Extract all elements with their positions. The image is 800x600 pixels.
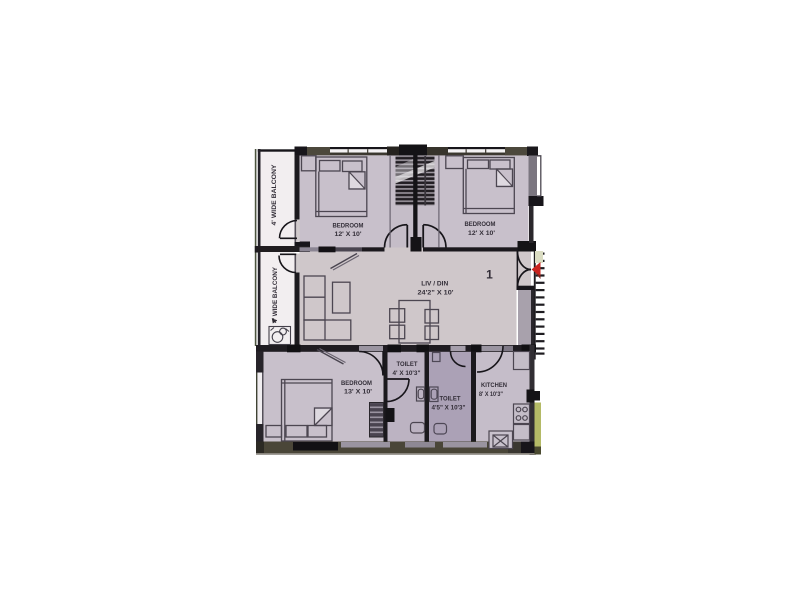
svg-text:4' X 10'3": 4' X 10'3" xyxy=(393,370,421,377)
svg-text:LIV / DIN: LIV / DIN xyxy=(421,280,448,287)
svg-text:12' X 10': 12' X 10' xyxy=(335,231,362,238)
svg-text:TOILET: TOILET xyxy=(440,396,461,403)
svg-text:BEDROOM: BEDROOM xyxy=(465,221,496,228)
svg-text:BEDROOM: BEDROOM xyxy=(333,222,364,229)
svg-text:4' WIDE BALCONY: 4' WIDE BALCONY xyxy=(272,266,279,323)
svg-text:4' WIDE BALCONY: 4' WIDE BALCONY xyxy=(271,164,278,226)
svg-text:24'2" X 10': 24'2" X 10' xyxy=(418,289,454,296)
svg-text:1: 1 xyxy=(486,267,493,281)
svg-text:BEDROOM: BEDROOM xyxy=(341,380,372,387)
svg-text:4'5" X 10'3": 4'5" X 10'3" xyxy=(432,405,466,412)
svg-text:12' X 10': 12' X 10' xyxy=(468,230,495,237)
svg-text:13' X 10': 13' X 10' xyxy=(344,388,372,395)
svg-text:8' X 10'3": 8' X 10'3" xyxy=(479,391,503,398)
svg-text:KITCHEN: KITCHEN xyxy=(481,382,507,389)
svg-text:TOILET: TOILET xyxy=(397,361,418,368)
